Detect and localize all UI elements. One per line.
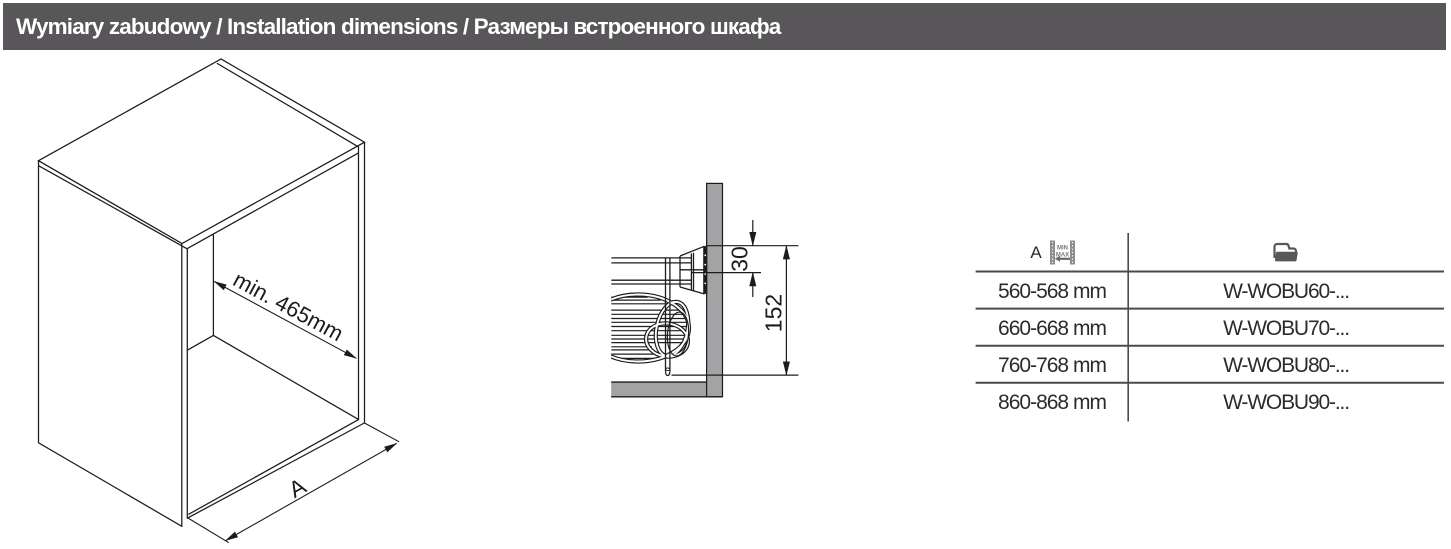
svg-text:152: 152 [761,294,787,332]
svg-text:MIN: MIN [1057,246,1068,252]
svg-text:W-WOBU90-...: W-WOBU90-... [1223,391,1349,414]
svg-text:A: A [1030,243,1042,262]
svg-text:660-668 mm: 660-668 mm [998,317,1106,340]
svg-text:A: A [284,472,311,503]
svg-text:min. 465mm: min. 465mm [229,267,347,347]
svg-text:760-768 mm: 760-768 mm [998,354,1106,377]
svg-text:W-WOBU80-...: W-WOBU80-... [1223,354,1349,377]
svg-text:W-WOBU60-...: W-WOBU60-... [1223,280,1349,303]
svg-text:560-568 mm: 560-568 mm [998,280,1106,303]
svg-text:30: 30 [727,246,753,272]
svg-text:W-WOBU70-...: W-WOBU70-... [1223,317,1349,340]
svg-text:860-868 mm: 860-868 mm [998,391,1106,414]
